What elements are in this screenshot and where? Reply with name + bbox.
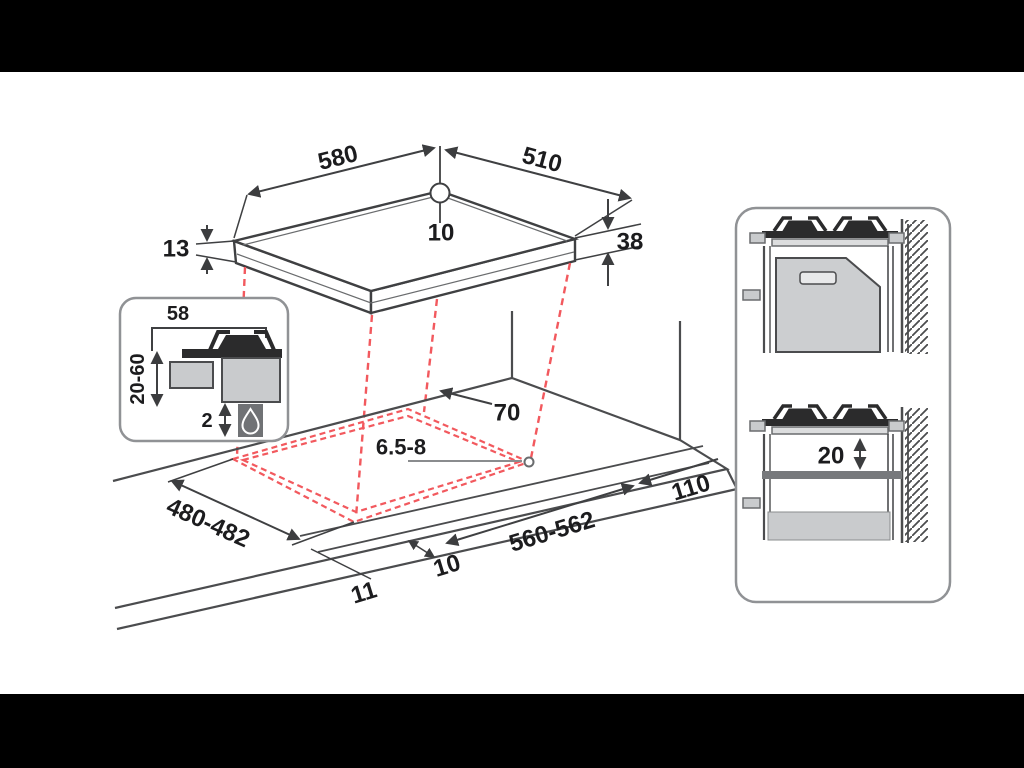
cabinet-body: [768, 512, 890, 540]
dim-front-lip: 13: [163, 236, 190, 263]
wall-hatch: [905, 408, 928, 542]
gas-inlet-stub: [743, 290, 760, 300]
dim-hole-offset: 10: [428, 220, 455, 247]
dim-rear-gap: 2: [201, 410, 212, 432]
dim-worktop-edge: 11: [348, 576, 380, 609]
dim-cutout-depth: 480-482: [162, 493, 253, 553]
oven-vent: [800, 272, 836, 284]
dim-body-height: 38: [617, 229, 644, 256]
dim-hob-width: 580: [315, 140, 360, 176]
installation-diagram: 580 510 10 13 38 70 6.5-8 480-482 560-56…: [0, 0, 1024, 768]
letterbox-top: [0, 0, 1024, 72]
side-view-panel: [736, 208, 950, 602]
dim-under-clearance: 20-60: [127, 353, 149, 404]
dim-cutout-width: 560-562: [506, 506, 598, 558]
dim-hob-depth: 510: [519, 142, 565, 178]
screw-hole: [408, 458, 534, 467]
dim-shelf-clearance: 20: [818, 443, 845, 470]
dim-fixing-hole: 6.5-8: [376, 435, 426, 460]
hole-marker: [431, 184, 450, 203]
gas-flame-icon: [238, 404, 263, 437]
dim-front-offset: 10: [430, 549, 463, 583]
wall-hatch: [905, 220, 928, 354]
dim-side-clearance: 110: [669, 469, 714, 506]
dim-rear-clearance: 70: [494, 400, 521, 427]
shelf-bar: [762, 471, 902, 479]
dim-burner-edge: 58: [167, 303, 189, 325]
letterbox-bottom: [0, 694, 1024, 768]
gas-inlet-stub: [743, 498, 760, 508]
diagram-canvas: 580 510 10 13 38 70 6.5-8 480-482 560-56…: [0, 0, 1024, 768]
